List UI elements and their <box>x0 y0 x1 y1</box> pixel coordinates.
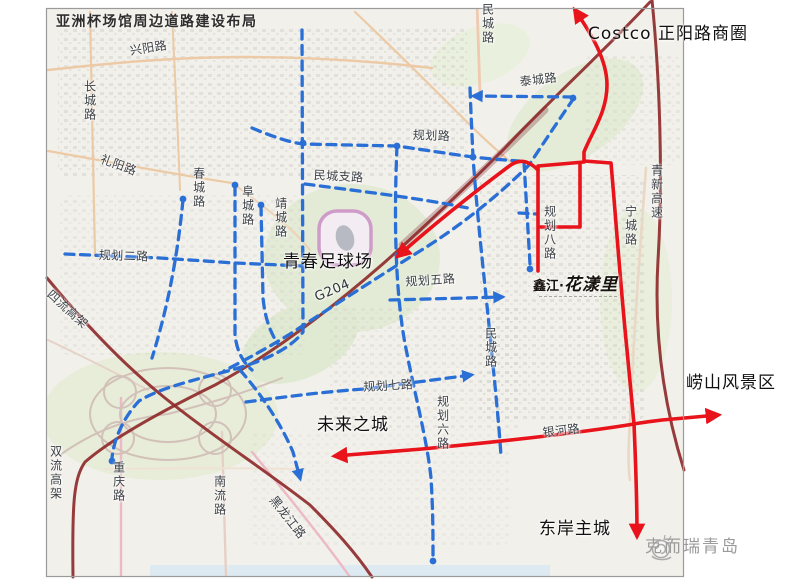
map-canvas <box>0 0 800 585</box>
stadium-shape <box>319 211 371 265</box>
map-screenshot: 亚洲杯场馆周边道路建设布局 鑫江·花漾里 克而瑞青岛 兴阳路长城路礼阳路春城路阜… <box>0 0 800 585</box>
